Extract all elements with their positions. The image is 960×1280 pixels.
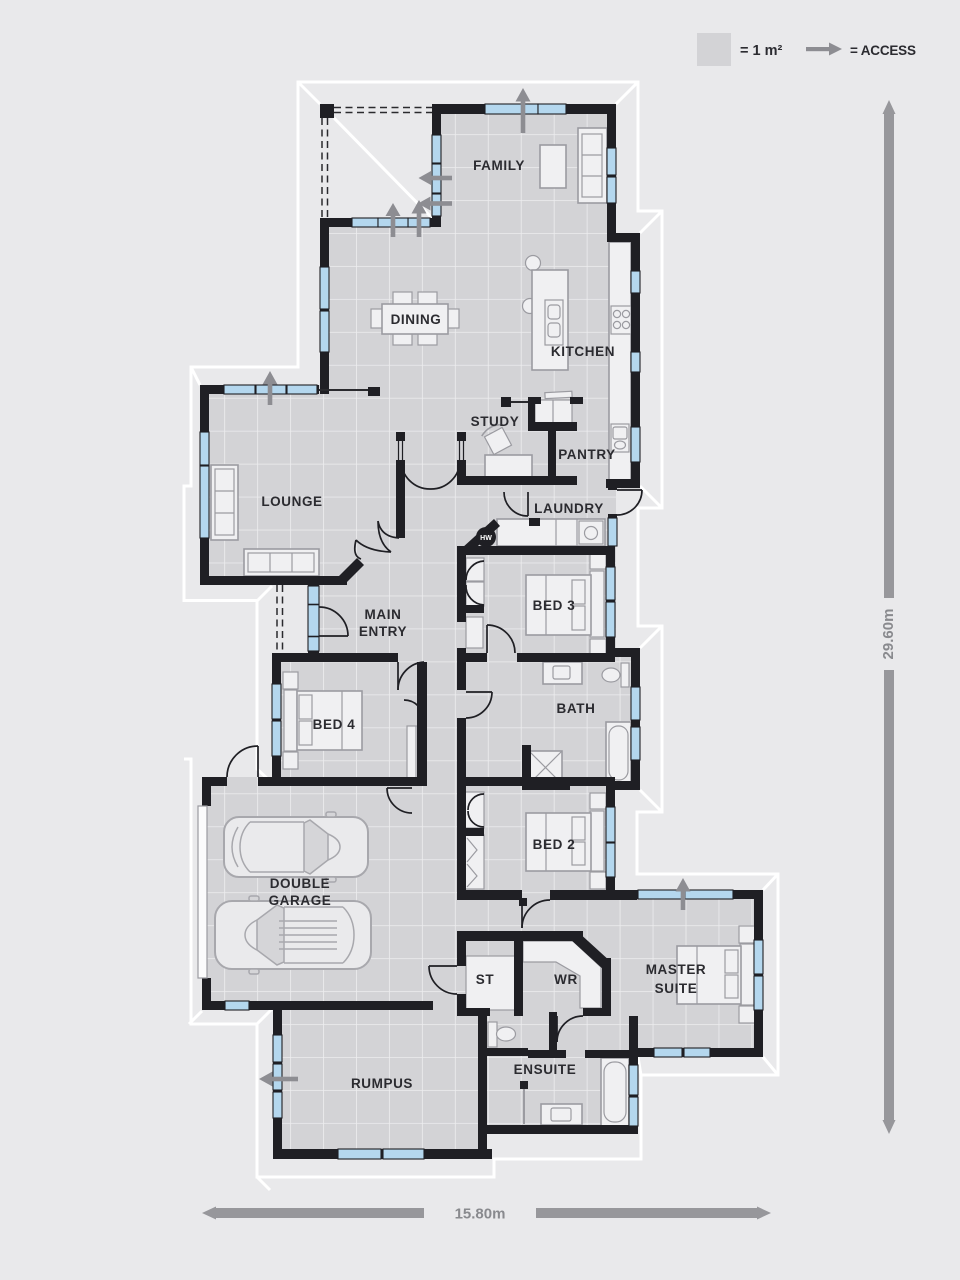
svg-text:DINING: DINING bbox=[391, 312, 442, 327]
svg-text:MAIN: MAIN bbox=[365, 607, 402, 622]
svg-text:SUITE: SUITE bbox=[655, 981, 698, 996]
svg-text:= 1 m²: = 1 m² bbox=[740, 43, 782, 59]
svg-text:PANTRY: PANTRY bbox=[558, 447, 616, 462]
svg-text:STUDY: STUDY bbox=[471, 414, 520, 429]
svg-text:HW: HW bbox=[480, 535, 492, 542]
svg-text:FAMILY: FAMILY bbox=[473, 158, 525, 173]
svg-text:BED 4: BED 4 bbox=[313, 717, 356, 732]
svg-text:GARAGE: GARAGE bbox=[269, 893, 332, 908]
svg-text:= ACCESS: = ACCESS bbox=[850, 43, 916, 58]
svg-text:29.60m: 29.60m bbox=[880, 609, 897, 660]
svg-text:ENTRY: ENTRY bbox=[359, 624, 407, 639]
svg-text:BATH: BATH bbox=[557, 701, 596, 716]
svg-text:RUMPUS: RUMPUS bbox=[351, 1076, 413, 1091]
svg-text:ST: ST bbox=[476, 972, 495, 987]
svg-text:DOUBLE: DOUBLE bbox=[270, 876, 331, 891]
svg-text:LOUNGE: LOUNGE bbox=[261, 494, 322, 509]
svg-text:ENSUITE: ENSUITE bbox=[514, 1062, 577, 1077]
svg-text:15.80m: 15.80m bbox=[455, 1206, 506, 1223]
svg-text:WR: WR bbox=[554, 972, 578, 987]
svg-text:BED 2: BED 2 bbox=[533, 837, 576, 852]
svg-text:KITCHEN: KITCHEN bbox=[551, 344, 615, 359]
svg-text:BED 3: BED 3 bbox=[533, 598, 576, 613]
svg-text:LAUNDRY: LAUNDRY bbox=[534, 501, 604, 516]
svg-text:MASTER: MASTER bbox=[646, 962, 707, 977]
